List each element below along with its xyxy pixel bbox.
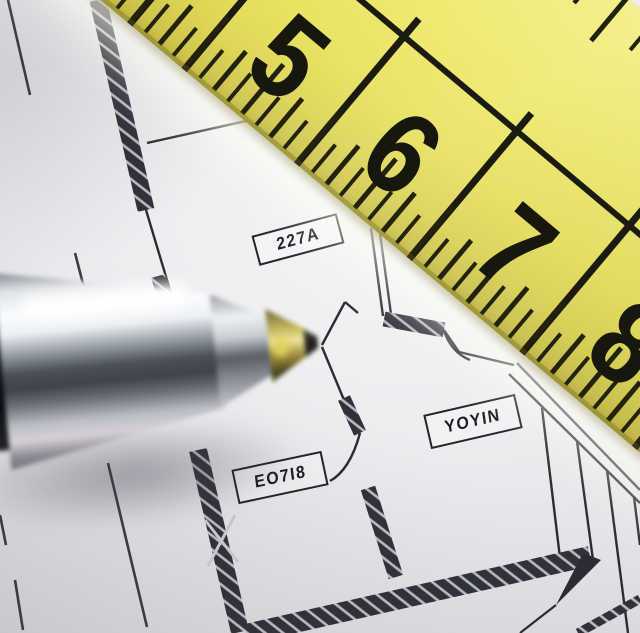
photo-scene: 227A YOYIN EO7I8 5 6 7 8 [0,0,640,633]
pen-ballpoint-icon [303,328,319,357]
wall-top-room [147,121,246,143]
wall-bottom-hatched [246,553,640,633]
ballpoint-pen [0,239,346,477]
pen-barrel-cone [0,252,229,470]
pen-neck [210,289,279,408]
room-label-text: YOYIN [444,406,502,436]
stair-lines [542,408,640,633]
